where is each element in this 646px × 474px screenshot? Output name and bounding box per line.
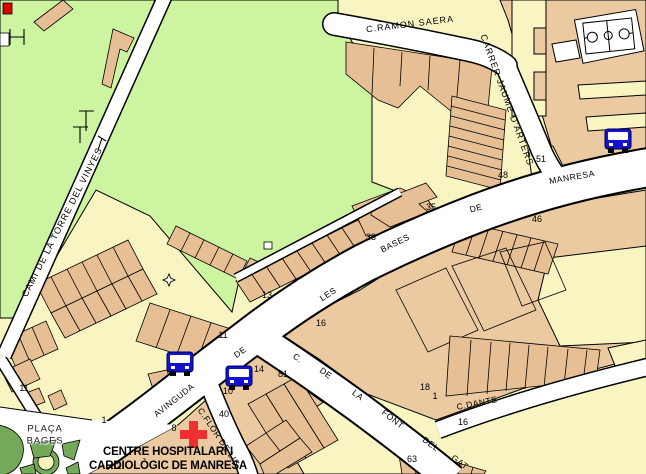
house-number: 18 <box>420 382 430 392</box>
house-number: 81 <box>278 369 288 379</box>
house-number: 63 <box>407 454 417 464</box>
house-number: 16 <box>316 318 326 328</box>
house-number: 40 <box>219 409 229 419</box>
house-number: 35 <box>426 202 436 212</box>
map-canvas[interactable]: CAMI DE LA TORRE DEL VINYES C.RAMON SAER… <box>0 0 646 474</box>
house-number: 16 <box>458 417 468 427</box>
house-number: 46 <box>532 214 542 224</box>
house-number: 2 <box>116 461 121 471</box>
house-number: 1 <box>101 415 106 425</box>
hospital-label-line1: CENTRE HOSPITALARI I <box>103 446 233 458</box>
placa-bages-label-line2: BAGES <box>27 436 64 447</box>
house-number: 11 <box>218 330 227 340</box>
house-number: 10 <box>223 386 233 396</box>
red-marker <box>3 3 12 14</box>
map-base-graphics <box>0 0 646 474</box>
bus-stop-icon-1[interactable] <box>167 352 193 376</box>
placa-bages-label-line1: PLAÇA <box>27 424 62 435</box>
house-number: 8 <box>171 423 176 433</box>
house-number: 48 <box>498 170 508 180</box>
house-number: 1 <box>432 391 437 401</box>
house-number: 14 <box>254 364 264 374</box>
house-number: 51 <box>536 154 546 164</box>
house-number: 13 <box>262 290 272 300</box>
bus-stop-icon-3[interactable] <box>605 129 631 153</box>
hospital-label-line2: CARDIOLÒGIC DE MANRESA <box>89 460 247 472</box>
house-number: 11 <box>19 383 28 393</box>
house-number: 33 <box>366 232 376 242</box>
